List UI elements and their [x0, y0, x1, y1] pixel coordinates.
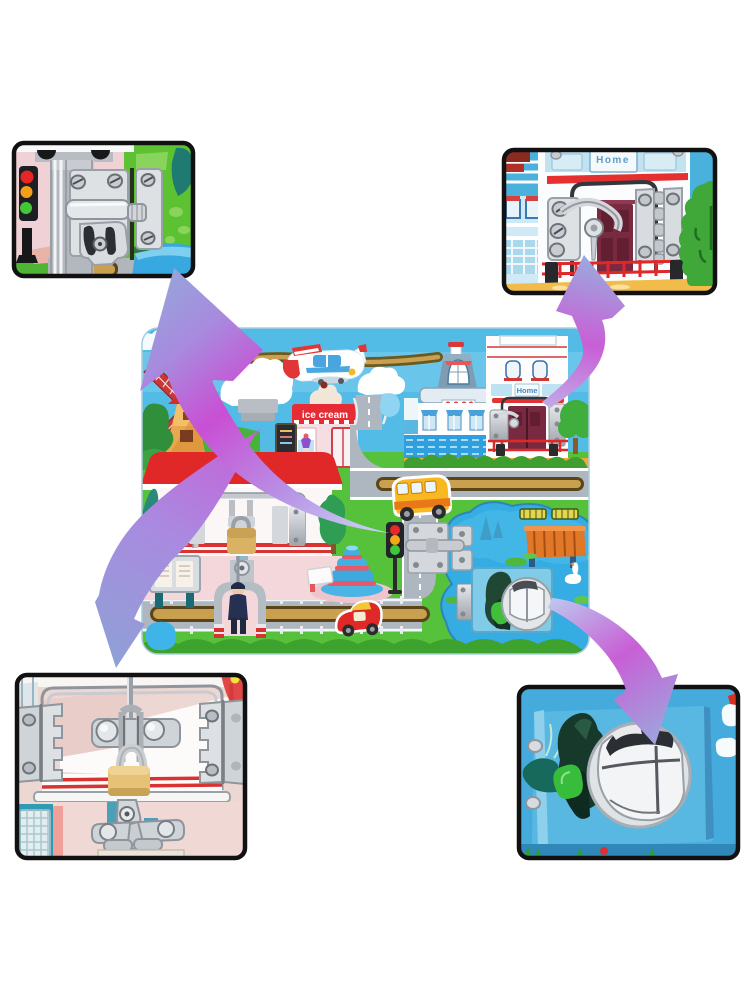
svg-text:Home: Home — [596, 155, 630, 166]
svg-text:ice cream: ice cream — [302, 410, 348, 421]
svg-text:Home: Home — [517, 386, 538, 395]
